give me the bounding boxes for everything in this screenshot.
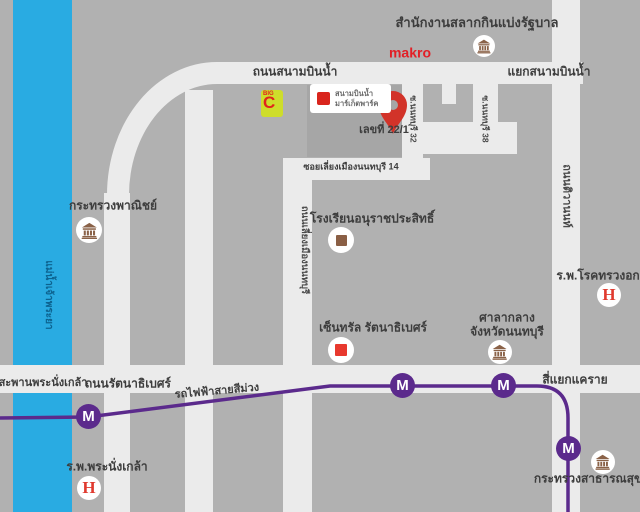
market-park-name-line1: สนามบินน้ำ [335,89,378,98]
label-ministry-commerce: กระทรวงพาณิชย์ [69,200,157,213]
label-soi-nonthaburi-38: ซ.นนทบุรี 38 [481,95,490,142]
ministry-public-health-icon [591,450,615,474]
label-destination-address: เลขที่ 22/1 [359,125,409,137]
label-pranangklao-hospital: ร.พ.พระนั่งเกล้า [66,461,147,474]
metro-station-icon: M [556,436,581,461]
ministry-commerce-icon [76,217,102,243]
bank-icon [80,221,99,240]
central-department-store-icon [328,337,354,363]
label-city-hall-line1: ศาลากลาง [479,312,535,325]
metro-station-icon: M [76,404,101,429]
makro-logo: makro [389,46,431,61]
city-hall-icon [488,340,512,364]
label-pranangklao-bridge: สะพานพระนั่งเกล้า [0,378,87,390]
bank-icon [476,38,492,54]
label-road-tiwanon: ถนนติวานนท์ [561,164,572,228]
pranangklao-hospital-icon: H [77,476,101,500]
chest-hospital-icon: H [597,283,621,307]
school-icon [328,227,354,253]
lottery-office-icon [473,35,495,57]
road-minor-vertical [185,90,213,512]
soi-connector [402,122,517,154]
label-central-rattanathibet: เซ็นทรัล รัตนาธิเบศร์ [319,322,427,335]
label-city-hall-line2: จังหวัดนนทบุรี [470,326,544,339]
metro-station-icon: M [390,373,415,398]
label-soi-nonthaburi-32: ซ.นนทบุรี 32 [409,95,418,142]
label-road-rattanathibet: ถนนรัตนาธิเบศร์ [85,378,171,391]
big-c-letter: C [263,95,283,110]
chao-phraya-river [13,0,72,512]
school-marker [336,235,347,246]
label-sanambinnam-junction: แยกสนามบินน้ำ [508,66,591,79]
bank-icon [491,343,508,360]
label-chest-hospital: ร.พ.โรคทรวงอก [556,270,639,283]
nonthaburi-location-map: สำนักงานสลากกินแบ่งรัฐบาล makro ถนนสนามบ… [0,0,640,512]
label-river: แม่น้ำเจ้าพระยา [43,260,53,329]
label-road-sanambinnam: ถนนสนามบินน้ำ [253,66,338,79]
market-park-logo-icon [317,92,330,105]
market-park-badge: สนามบินน้ำ มาร์เก็ตพาร์ค [310,84,391,113]
label-road-liang-mueang: ถนนเลี่ยงเมืองนนทบุรี [299,206,309,294]
label-khae-rai-junction: สี่แยกแคราย [542,374,607,387]
label-soi-liang-mueang-14: ซอยเลี่ยงเมืองนนทบุรี 14 [303,162,398,171]
label-lottery-office: สำนักงานสลากกินแบ่งรัฐบาล [395,16,558,30]
soi-stub [442,84,456,104]
bank-icon [594,453,611,470]
label-school: โรงเรียนอนุราชประสิทธิ์ [310,213,434,226]
metro-station-icon: M [491,373,516,398]
central-marker [335,344,347,356]
label-ministry-public-health: กระทรวงสาธารณสุข [534,473,640,486]
big-c-logo: BIG C [261,90,283,117]
market-park-name-line2: มาร์เก็ตพาร์ค [335,99,378,108]
